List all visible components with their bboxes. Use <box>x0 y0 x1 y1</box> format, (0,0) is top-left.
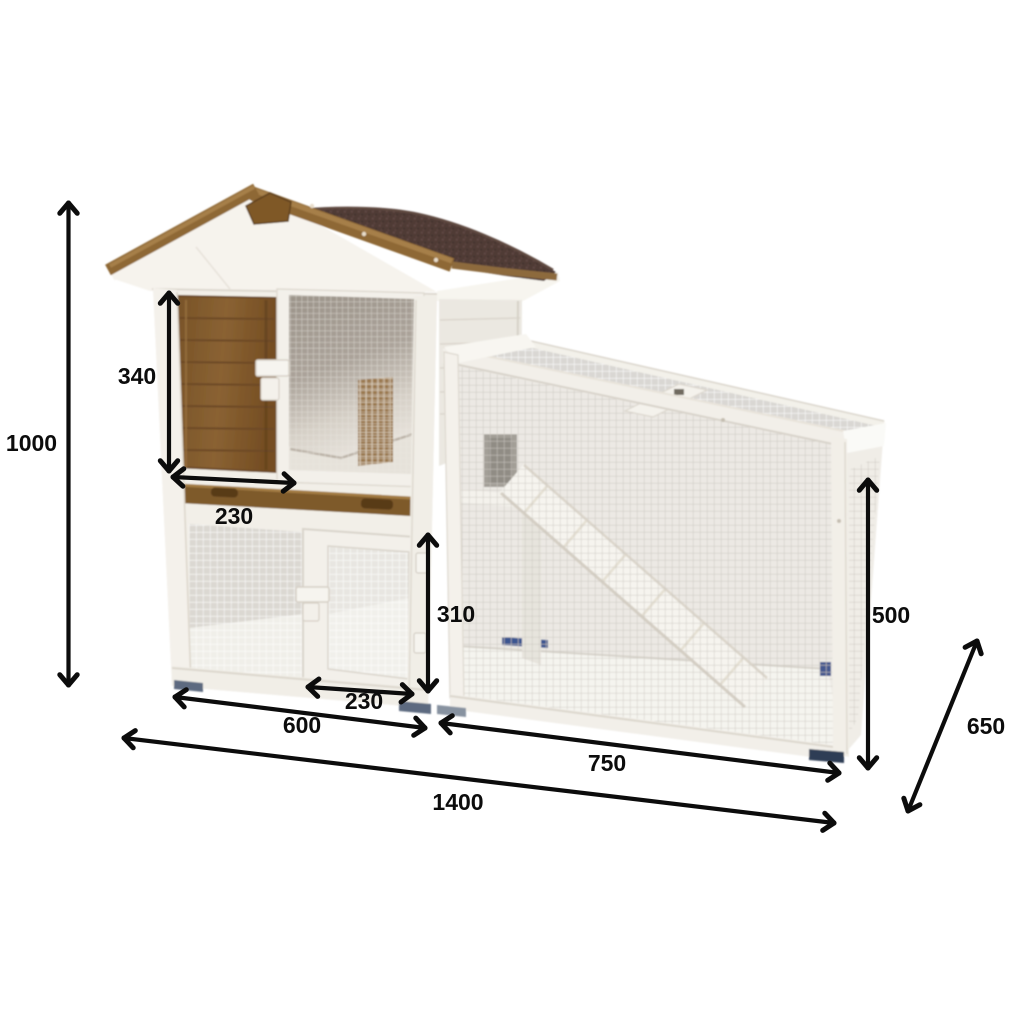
svg-text:1400: 1400 <box>432 789 483 815</box>
svg-text:600: 600 <box>283 712 321 738</box>
svg-text:500: 500 <box>872 602 910 628</box>
svg-text:750: 750 <box>588 750 626 776</box>
svg-text:230: 230 <box>215 503 253 529</box>
svg-text:340: 340 <box>118 363 156 389</box>
svg-text:650: 650 <box>967 713 1005 739</box>
svg-text:310: 310 <box>437 601 475 627</box>
svg-text:1000: 1000 <box>6 430 57 456</box>
svg-text:230: 230 <box>345 688 383 714</box>
